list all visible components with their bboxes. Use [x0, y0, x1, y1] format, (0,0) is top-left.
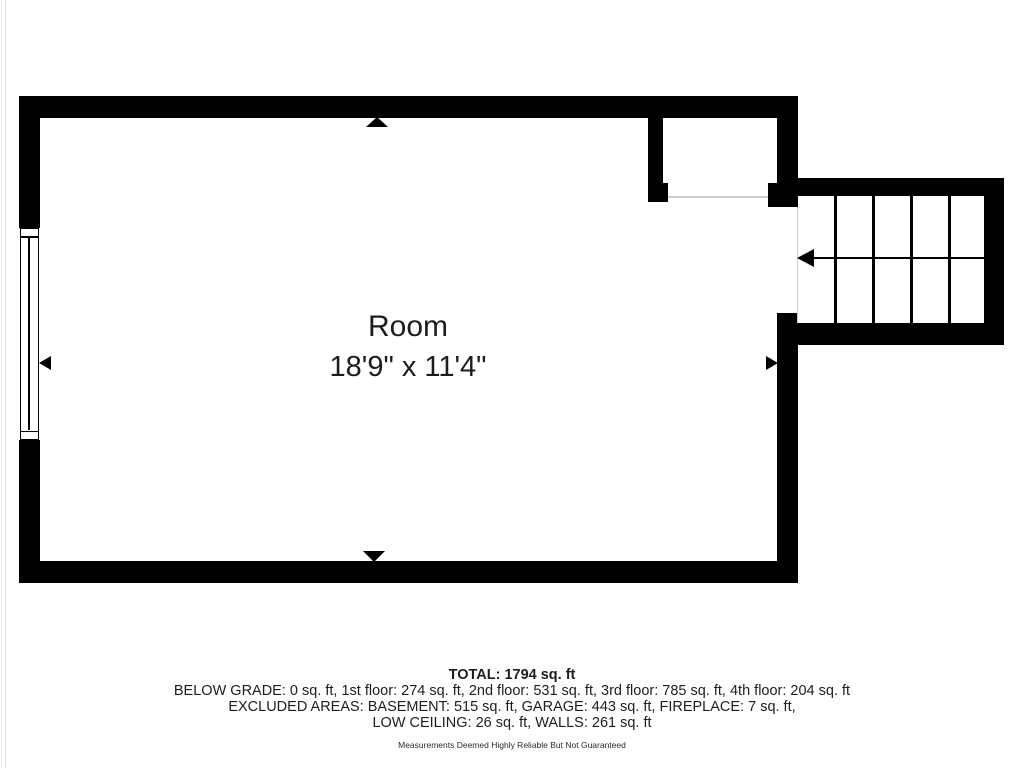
summary-excluded-2: LOW CEILING: 26 sq. ft, WALLS: 261 sq. f… — [0, 715, 1024, 731]
alcove-door-jamb-right — [768, 183, 798, 207]
floor-plan-page: Room 18'9" x 11'4" TOTAL: 1794 sq. ft BE… — [0, 0, 1024, 768]
marker-arrow-up-icon — [366, 117, 388, 127]
window-center-line — [28, 238, 30, 430]
summary-disclaimer: Measurements Deemed Highly Reliable But … — [0, 740, 1024, 750]
window-frame-line — [21, 236, 38, 238]
stair-tread-line — [834, 196, 837, 323]
area-summary: TOTAL: 1794 sq. ft BELOW GRADE: 0 sq. ft… — [0, 667, 1024, 750]
stair-tread-line — [872, 196, 875, 323]
wall-left-upper — [19, 96, 40, 228]
room-dimensions: 18'9" x 11'4" — [158, 350, 658, 384]
stairwell-wall-right — [984, 178, 1004, 345]
marker-arrow-left-icon — [39, 356, 51, 370]
room-name: Room — [158, 310, 658, 344]
wall-bottom — [19, 561, 798, 583]
page-edge-line — [5, 0, 6, 768]
stairwell-wall-top — [798, 178, 1004, 196]
window-symbol — [20, 228, 39, 440]
alcove-threshold-line — [668, 196, 768, 198]
wall-right-lower — [777, 313, 798, 583]
room-label: Room 18'9" x 11'4" — [158, 310, 658, 384]
marker-arrow-right-icon — [766, 356, 778, 370]
summary-excluded-1: EXCLUDED AREAS: BASEMENT: 515 sq. ft, GA… — [0, 699, 1024, 715]
stair-direction-arrow-icon — [797, 249, 814, 267]
summary-total: TOTAL: 1794 sq. ft — [0, 667, 1024, 683]
wall-top — [19, 96, 798, 118]
page-edge-line — [1, 0, 2, 768]
wall-left-lower — [19, 440, 40, 583]
window-frame-line — [21, 431, 38, 433]
stair-tread-line — [910, 196, 913, 323]
stair-walk-line — [812, 257, 984, 259]
stair-treads — [798, 196, 984, 323]
stairwell-wall-bottom — [798, 323, 1004, 345]
alcove-door-jamb-left — [648, 183, 668, 202]
summary-floors: BELOW GRADE: 0 sq. ft, 1st floor: 274 sq… — [0, 683, 1024, 699]
marker-arrow-down-icon — [363, 551, 385, 562]
stair-tread-line — [948, 196, 951, 323]
